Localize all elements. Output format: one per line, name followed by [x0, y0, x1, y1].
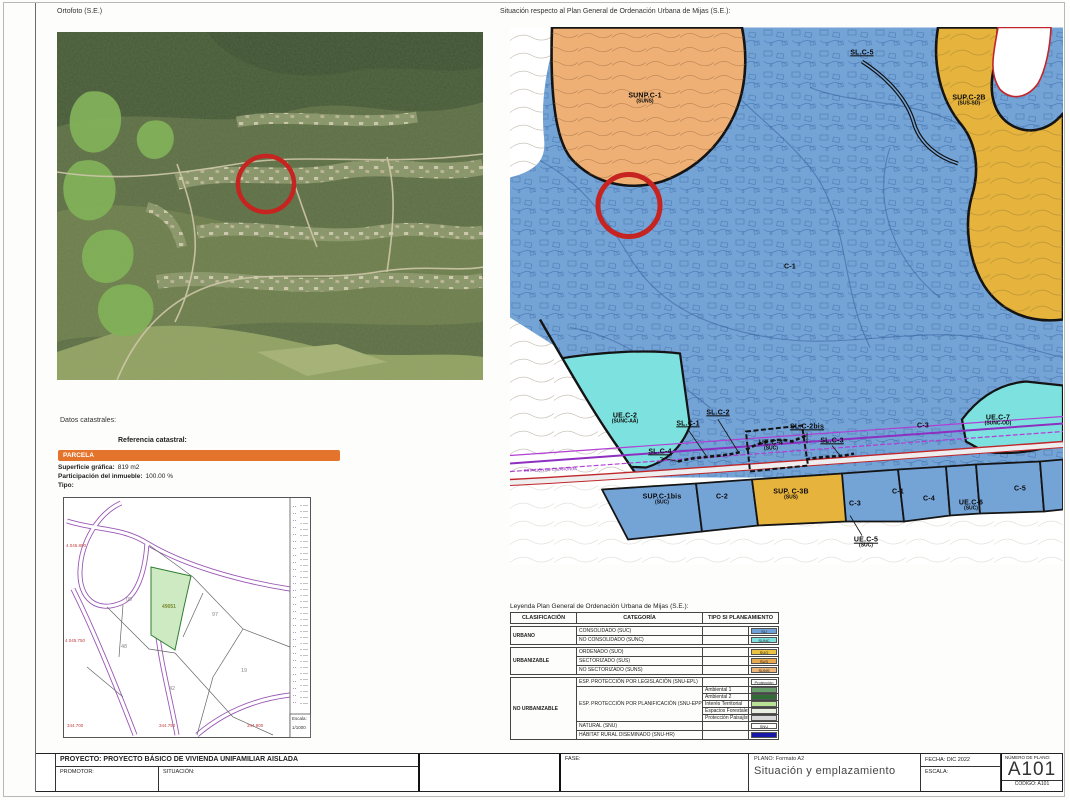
legend-swatch: SUNC — [751, 637, 777, 643]
fase-cell: FASE: — [561, 754, 749, 791]
plano-title: Situación y emplazamiento — [754, 765, 920, 777]
parcel-id-label: 49051 — [162, 604, 176, 610]
project-title: PROYECTO: PROYECTO BÁSICO DE VIVIENDA UN… — [56, 754, 418, 767]
zone-label-c-5: C-5 — [1014, 485, 1026, 492]
legend-group-table: URBANIZABLEORDENADO (SUO)SUOSECTORIZADO … — [510, 647, 779, 675]
legend-header-categoria: CATEGORÍA — [577, 613, 703, 624]
zone-label-sl-c-5: SL.C-5 — [850, 49, 873, 56]
legend: CLASIFICACIÓN CATEGORÍA TIPO SI PLANEAMI… — [510, 612, 784, 742]
title-block-empty-cell — [420, 754, 561, 791]
legend-categoria: NATURAL (SNU) — [577, 722, 703, 731]
map-side-legend-marks — [293, 503, 296, 708]
parcel-number: 19 — [241, 668, 247, 674]
legend-swatch: Protección — [751, 679, 777, 685]
legend-swatch — [751, 732, 777, 738]
fecha-label: FECHA: DIC 2022 — [921, 754, 1000, 767]
zone-label-sup-c-2b: SUP.C-2B(SUS-SD) — [952, 95, 985, 108]
legend-swatch-cell — [749, 687, 779, 694]
fecha-escala-cell: FECHA: DIC 2022 ESCALA: — [921, 754, 1001, 791]
zone-label-c-3: C-3 — [917, 422, 929, 429]
grid-coordinate: 4.045.800 — [66, 543, 86, 548]
legend-tipo-label — [703, 678, 749, 687]
zone-label-ue-c-7: UE.C-7(SUNC-OD) — [985, 415, 1012, 428]
cadastral-map-svg — [63, 497, 311, 738]
title-block-logo-cell — [36, 754, 56, 791]
legend-groups: URBANOCONSOLIDADO (SUC)SUNO CONSOLIDADO … — [510, 626, 784, 740]
zone-label-ue-c-5: UE.C-5(SUC) — [854, 537, 878, 550]
zone-label-ue-c-2: UE.C-2(SUNC-AA) — [612, 413, 638, 426]
legend-swatch-cell — [749, 715, 779, 722]
legend-clasificacion: URBANIZABLE — [511, 648, 577, 675]
legend-swatch: SUO — [751, 649, 777, 655]
legend-categoria: NO CONSOLIDADO (SUNC) — [577, 636, 703, 645]
legend-group-table: NO URBANIZABLEESP. PROTECCIÓN POR LEGISL… — [510, 677, 779, 740]
legend-tipo-label — [703, 648, 749, 657]
pgou-caption: Situación respecto al Plan General de Or… — [500, 8, 730, 15]
zoning-map: SUNP.C-1(SUNS)SL.C-5SUP.C-2B(SUS-SD)C-1U… — [510, 27, 1063, 565]
zone-label-c-1: C-1 — [784, 263, 796, 270]
legend-swatch — [751, 694, 777, 700]
legend-categoria: CONSOLIDADO (SUC) — [577, 627, 703, 636]
legend-tipo-label — [703, 627, 749, 636]
sheet-frame-line — [35, 3, 36, 792]
ortho-caption: Ortofoto (S.E.) — [57, 8, 102, 15]
legend-categoria: NO SECTORIZADO (SUNS) — [577, 666, 703, 675]
legend-tipo-label — [703, 731, 749, 740]
field-tipo: Tipo: — [58, 481, 173, 490]
legend-swatch-cell — [749, 701, 779, 708]
legend-swatch-cell: SNU — [749, 722, 779, 731]
legend-tipo-label — [703, 722, 749, 731]
legend-swatch-cell: Protección — [749, 678, 779, 687]
legend-group-table: URBANOCONSOLIDADO (SUC)SUNO CONSOLIDADO … — [510, 626, 779, 645]
field-participacion: Participación del inmueble:100.00 % — [58, 472, 173, 481]
zone-label-sup-c-1bis: SUP.C-1bis(SUC) — [643, 494, 682, 507]
legend-tipo-label — [703, 636, 749, 645]
legend-swatch-cell — [749, 694, 779, 701]
escala-label: ESCALA: — [921, 767, 1000, 791]
legend-clasificacion: NO URBANIZABLE — [511, 678, 577, 740]
ortho-photo — [57, 32, 483, 380]
legend-swatch-cell: SUS — [749, 657, 779, 666]
plano-format-label: PLANO: Formato A2 — [754, 756, 920, 762]
grid-coordinate: 4.045.750 — [65, 638, 85, 643]
legend-swatch-cell: SU — [749, 627, 779, 636]
legend-categoria: ORDENADO (SUO) — [577, 648, 703, 657]
zone-label-sup-c-3b: SUP. C-3B(SUS) — [773, 489, 809, 502]
parcel-number: 42 — [169, 686, 175, 692]
situacion-cell: SITUACIÓN: — [159, 767, 418, 791]
legend-swatch-cell: SUNS — [749, 666, 779, 675]
legend-categoria: HÁBITAT RURAL DISEMINADO (SNU-HR) — [577, 731, 703, 740]
grid-coordinate: 344.750 — [159, 723, 175, 728]
legend-swatch — [751, 715, 777, 721]
legend-swatch: SUNS — [751, 667, 777, 673]
numero-value: A101 — [1008, 760, 1056, 779]
legend-swatch — [751, 708, 777, 714]
legend-header-tipo: TIPO SI PLANEAMIENTO — [703, 613, 779, 624]
legend-swatch-cell: SUNC — [749, 636, 779, 645]
zone-label-sl-c-1: SL.C-1 — [676, 420, 699, 427]
zone-label-ue-c-4: UE.C-4(SUC) — [759, 440, 783, 453]
grid-coordinate: 344.800 — [247, 723, 263, 728]
legend-title: Leyenda Plan General de Ordenación Urban… — [510, 603, 689, 610]
catastro-fields: Superficie gráfica:819 m2 Participación … — [58, 463, 173, 490]
legend-tipo-label — [703, 657, 749, 666]
legend-categoria: ESP. PROTECCIÓN POR PLANIFICACIÓN (SNU-E… — [577, 687, 703, 722]
legend-tipo-label: Interés Territorial — [703, 701, 749, 708]
legend-swatch-cell: SUO — [749, 648, 779, 657]
scale-label: Escala: — [292, 716, 307, 721]
zone-label-sl-c-4: SL.C-4 — [648, 448, 671, 455]
plan-number-cell: NÚMERO DE PLANO: A101 CODIGO: A101 — [1001, 754, 1062, 791]
plano-cell: PLANO: Formato A2 Situación y emplazamie… — [749, 754, 921, 791]
catastro-section-title: Datos catastrales: — [60, 417, 116, 424]
ortho-photo-svg — [57, 32, 483, 380]
legend-categoria: SECTORIZADO (SUS) — [577, 657, 703, 666]
scale-value: 1/1000 — [292, 725, 306, 730]
legend-clasificacion: URBANO — [511, 627, 577, 645]
title-block: PROYECTO: PROYECTO BÁSICO DE VIVIENDA UN… — [36, 753, 1063, 792]
parcel-number: 48 — [121, 644, 127, 650]
promotor-cell: PROMOTOR: — [56, 767, 159, 791]
codigo: CODIGO: A101 — [1002, 780, 1062, 787]
legend-swatch — [751, 687, 777, 693]
zone-label-c-3: C-3 — [849, 500, 861, 507]
zoning-map-labels: SUNP.C-1(SUNS)SL.C-5SUP.C-2B(SUS-SD)C-1U… — [510, 27, 1063, 565]
zone-label-sunp-c-1: SUNP.C-1(SUNS) — [628, 93, 661, 106]
title-block-project: PROYECTO: PROYECTO BÁSICO DE VIVIENDA UN… — [56, 754, 420, 791]
zone-label-c-2: C-2 — [716, 493, 728, 500]
parcela-header-bar: PARCELA — [58, 450, 340, 461]
legend-header: CLASIFICACIÓN CATEGORÍA TIPO SI PLANEAMI… — [510, 612, 779, 624]
legend-tipo-label: Ambiental 2 — [703, 694, 749, 701]
legend-swatch: SNU — [751, 723, 777, 729]
legend-swatch — [751, 701, 777, 707]
cadastral-map: 49051 Escala: 1/1000 09974819424.045.800… — [63, 497, 311, 738]
legend-tipo-label: Espacios Forestales — [703, 708, 749, 715]
legend-swatch-cell — [749, 708, 779, 715]
legend-tipo-label — [703, 666, 749, 675]
field-superficie: Superficie gráfica:819 m2 — [58, 463, 173, 472]
parcel-number: 09 — [126, 597, 132, 603]
legend-header-clasificacion: CLASIFICACIÓN — [511, 613, 577, 624]
legend-swatch: SUS — [751, 658, 777, 664]
legend-swatch-cell — [749, 731, 779, 740]
legend-tipo-label: Protección Paisajística — [703, 715, 749, 722]
zone-label-c-4: C-4 — [923, 495, 935, 502]
parcel-number: 97 — [212, 612, 218, 618]
grid-coordinate: 344.700 — [67, 723, 83, 728]
zone-label-sl-c-2bis: SL.C-2bis — [790, 423, 824, 430]
zone-label-c-1: C-1 — [892, 488, 904, 495]
legend-categoria: ESP. PROTECCIÓN POR LEGISLACIÓN (SNU-EPL… — [577, 678, 703, 687]
zone-label-sl-c-2: SL.C-2 — [706, 409, 729, 416]
zone-label-ue-c-6: UE.C-6(SUC) — [959, 500, 983, 513]
catastro-reference-label: Referencia catastral: — [118, 437, 187, 444]
zone-label-sl-c-3: SL.C-3 — [820, 437, 843, 444]
legend-tipo-label: Ambiental 1 — [703, 687, 749, 694]
legend-swatch: SU — [751, 628, 777, 634]
